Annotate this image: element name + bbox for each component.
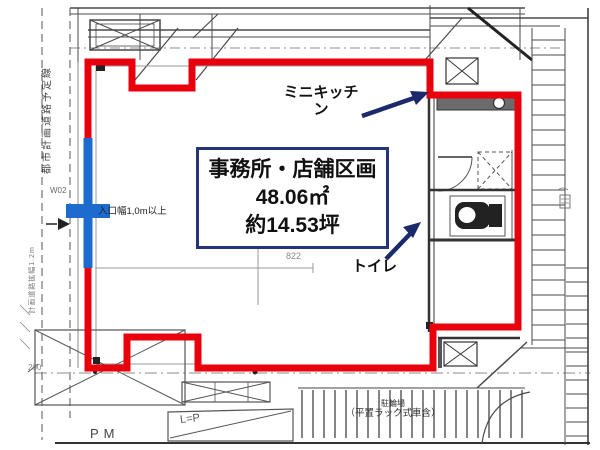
- unit-area-m2: 48.06㎡: [256, 184, 330, 212]
- shaft-box-bottom: [182, 382, 270, 402]
- kitchen-sink-icon: [494, 98, 505, 109]
- parking-pm-label: PM: [90, 426, 120, 441]
- mini-kitchen-area: [437, 58, 515, 110]
- bicycle-parking-line1: 駐輪場: [303, 399, 483, 408]
- dashed-shaft-box: [478, 152, 512, 189]
- floor-plan-screenshot: 事務所・店舗区画 48.06㎡ 約14.53坪 ミニキッチン トイレ 入口幅1,…: [0, 0, 600, 450]
- entrance-arrow-tick: [58, 218, 70, 230]
- grid-mark-label: W02: [50, 186, 66, 195]
- toilet-icon: [450, 196, 505, 236]
- mini-kitchen-arrow: [362, 91, 429, 116]
- shaft-box-bottom-right: [438, 338, 520, 368]
- dimension-822: 822: [286, 251, 301, 261]
- city-planning-road-label: 都市計画道路予定線: [38, 50, 52, 190]
- kitchen-toilet-block: [429, 58, 515, 332]
- shaft-box-topleft: [90, 20, 160, 50]
- entrance-width-label: 入口幅1,0m以上: [98, 203, 167, 217]
- door-swing: [438, 157, 472, 191]
- bicycle-parking-label: 駐輪場 （平置ラック式車含）: [303, 399, 483, 419]
- unit-label-box: 事務所・店舗区画 48.06㎡ 約14.53坪: [196, 147, 389, 249]
- toilet-arrow: [386, 222, 421, 259]
- road-widening-label: 計画道路拡幅1.2m: [27, 219, 37, 341]
- dimension-200: 200: [28, 363, 41, 372]
- toilet-label: トイレ: [352, 255, 397, 276]
- dimension-lines: [95, 248, 313, 305]
- lp-label: L=P: [179, 412, 200, 426]
- unit-area-tsubo: 約14.53坪: [245, 212, 340, 240]
- mini-kitchen-label: ミニキッチン: [279, 84, 363, 118]
- bicycle-parking-line2: （平置ラック式車含）: [303, 408, 483, 419]
- bottom-area: [35, 330, 590, 441]
- unit-name: 事務所・店舗区画: [209, 156, 377, 184]
